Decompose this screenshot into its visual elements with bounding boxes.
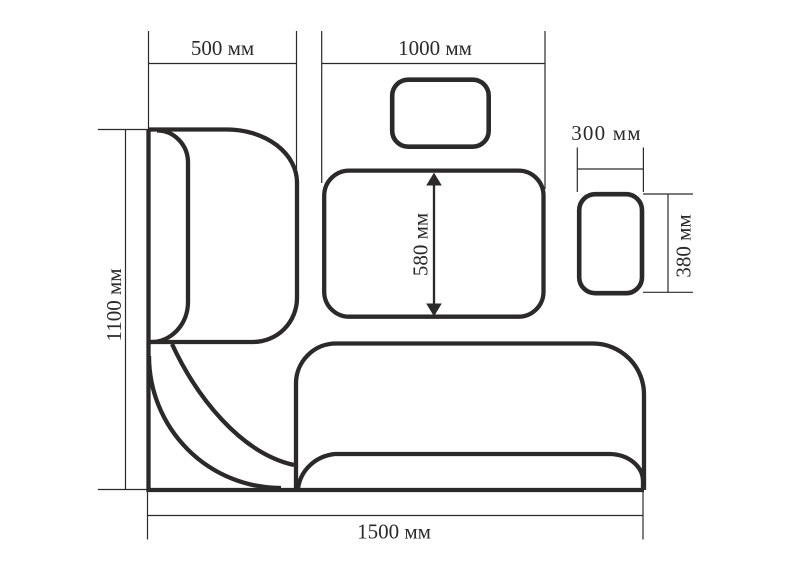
svg-text:1500 мм: 1500 мм <box>357 520 431 544</box>
svg-text:580 мм: 580 мм <box>409 213 433 276</box>
svg-text:500 мм: 500 мм <box>191 36 254 60</box>
svg-text:300 мм: 300 мм <box>571 121 642 145</box>
svg-text:380 мм: 380 мм <box>672 214 696 277</box>
svg-text:1000 мм: 1000 мм <box>398 36 472 60</box>
svg-text:1100 мм: 1100 мм <box>102 268 126 341</box>
